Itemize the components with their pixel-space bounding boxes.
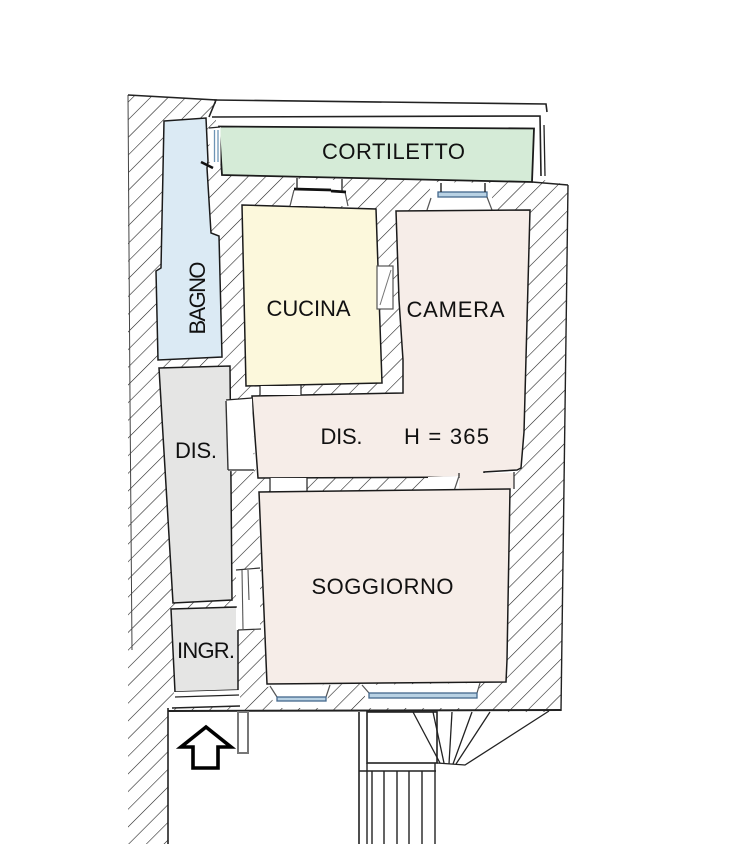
svg-text:DIS.: DIS.	[321, 424, 363, 449]
svg-text:INGR.: INGR.	[177, 638, 235, 663]
svg-text:CORTILETTO: CORTILETTO	[322, 139, 465, 164]
svg-text:BAGNO: BAGNO	[185, 262, 210, 335]
svg-text:CUCINA: CUCINA	[267, 296, 351, 321]
svg-text:CAMERA: CAMERA	[407, 297, 505, 322]
svg-text:H = 365: H = 365	[404, 424, 489, 449]
svg-text:SOGGIORNO: SOGGIORNO	[312, 574, 454, 599]
svg-text:DIS.: DIS.	[175, 438, 217, 463]
